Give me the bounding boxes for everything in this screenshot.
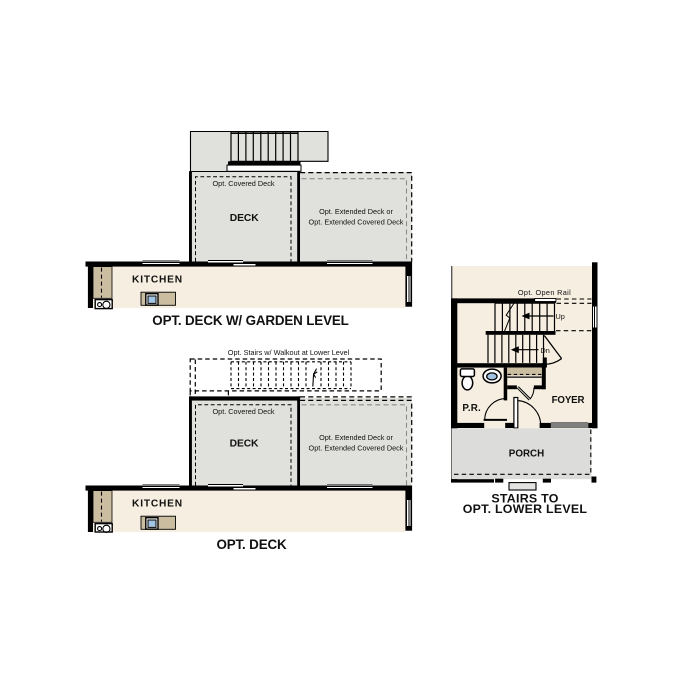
svg-text:PORCH: PORCH [509,449,544,460]
svg-text:P.R.: P.R. [462,403,481,414]
svg-text:KITCHEN: KITCHEN [132,274,183,285]
svg-text:Up: Up [556,312,565,321]
svg-text:Opt. Extended Covered Deck: Opt. Extended Covered Deck [309,443,404,452]
svg-text:Opt. Stairs w/ Walkout at Lowe: Opt. Stairs w/ Walkout at Lower Level [228,348,350,357]
svg-text:OPT. DECK W/ GARDEN LEVEL: OPT. DECK W/ GARDEN LEVEL [152,313,348,328]
svg-text:Opt. Extended Deck or: Opt. Extended Deck or [319,433,393,442]
svg-text:Opt. Extended Covered Deck: Opt. Extended Covered Deck [309,217,404,226]
svg-text:Opt. Extended Deck or: Opt. Extended Deck or [319,207,393,216]
svg-text:Opt. Covered Deck: Opt. Covered Deck [212,407,274,416]
svg-text:KITCHEN: KITCHEN [132,498,183,509]
svg-text:FOYER: FOYER [552,395,585,406]
svg-text:Opt. Covered Deck: Opt. Covered Deck [212,179,274,188]
svg-text:Opt. Open Rail: Opt. Open Rail [518,288,571,297]
svg-text:DECK: DECK [230,439,259,450]
svg-text:OPT. LOWER LEVEL: OPT. LOWER LEVEL [463,502,588,516]
svg-text:DECK: DECK [230,213,259,224]
svg-text:OPT. DECK: OPT. DECK [216,537,287,552]
svg-text:Dn: Dn [541,346,550,355]
